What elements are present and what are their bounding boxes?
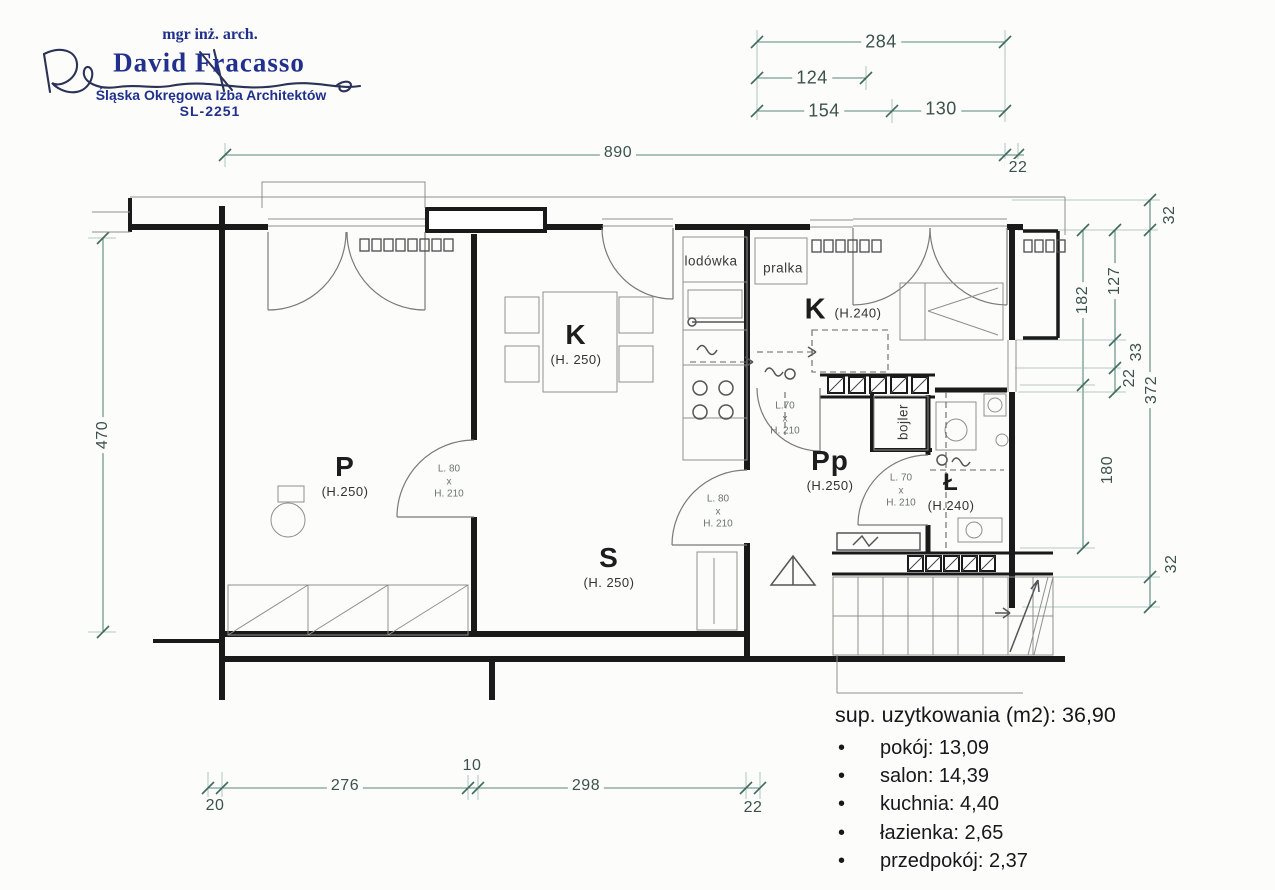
dashed-lines xyxy=(690,330,1004,550)
dim-22-mid: 22 xyxy=(1121,365,1139,392)
sink xyxy=(688,290,742,318)
dim-298: 298 xyxy=(568,777,604,795)
room-label-salon: S (H. 250) xyxy=(584,544,635,590)
summary-item-lazienka: • łazienka: 2,65 xyxy=(838,821,1003,845)
wardrobe xyxy=(228,585,468,635)
label-washer: pralka xyxy=(763,261,803,276)
dim-124: 124 xyxy=(792,68,832,89)
floorplan-scan-page: mgr inż. arch. David Fracasso Śląska Okr… xyxy=(0,0,1275,890)
dim-182: 182 xyxy=(1074,282,1092,318)
radiator-row-1 xyxy=(360,239,453,251)
bullet-icon: • xyxy=(838,793,854,816)
label-fridge: lodówka xyxy=(684,254,737,269)
radiator-row-2 xyxy=(812,240,881,252)
summary-item-salon: • salon: 14,39 xyxy=(838,764,989,788)
floorplan-drawing xyxy=(0,0,1275,890)
door-label-bath: L. 70 x H. 210 xyxy=(886,472,915,510)
room-label-kuchnia: K (H.240) xyxy=(805,296,882,325)
staircase xyxy=(833,577,1053,693)
radiator-symbols xyxy=(360,239,1065,252)
entrance-marker xyxy=(771,556,815,585)
door-label-p: L. 80 x H. 210 xyxy=(434,463,463,501)
dim-180: 180 xyxy=(1099,452,1117,488)
label-boiler: bojler xyxy=(896,404,911,440)
dim-33: 33 xyxy=(1128,339,1146,366)
hatch-row-lower xyxy=(908,556,995,571)
bathroom-fixtures xyxy=(936,394,1008,542)
hatch-row-upper xyxy=(828,377,928,393)
window-symbol xyxy=(427,209,545,231)
summary-item-przedpokoj: • przedpokój: 2,37 xyxy=(838,849,1028,873)
dim-276: 276 xyxy=(327,777,363,795)
bullet-icon: • xyxy=(838,737,854,760)
stamp-title: mgr inż. arch. xyxy=(162,26,257,44)
summary-item-kuchnia: • kuchnia: 4,40 xyxy=(838,792,999,816)
stool xyxy=(271,503,305,537)
room-label-pokoj: P (H.250) xyxy=(322,453,369,499)
summary-title: sup. uzytkowania (m2): 36,90 xyxy=(835,703,1116,728)
dim-154: 154 xyxy=(804,101,844,122)
dim-22-top: 22 xyxy=(1005,159,1032,177)
door-label-s: L. 80 x H. 210 xyxy=(703,493,732,531)
stamp-license: SL-2251 xyxy=(180,103,241,119)
bullet-icon: • xyxy=(838,850,854,873)
bullet-icon: • xyxy=(838,822,854,845)
stamp-name: David Fracasso xyxy=(113,48,305,79)
walls xyxy=(130,198,1065,700)
stamp-chamber: Śląska Okręgowa Izba Architektów xyxy=(96,87,327,103)
room-label-przedpokoj: Pp (H.250) xyxy=(807,447,854,493)
dim-130: 130 xyxy=(921,99,961,120)
dim-22-bottom: 22 xyxy=(740,799,767,817)
entry-cabinet xyxy=(837,533,920,550)
dim-127: 127 xyxy=(1106,263,1124,299)
dim-20: 20 xyxy=(202,797,229,815)
kitchen-counter xyxy=(900,283,1003,340)
dim-470: 470 xyxy=(94,417,112,453)
bullet-icon: • xyxy=(838,765,854,788)
dim-372: 372 xyxy=(1143,372,1161,408)
dim-10: 10 xyxy=(459,757,486,775)
radiator-vertical xyxy=(697,552,737,630)
dim-284: 284 xyxy=(861,32,901,53)
dim-890: 890 xyxy=(600,144,636,162)
dim-32-bottom: 32 xyxy=(1163,551,1181,578)
room-label-lazienka: Ł (H.240) xyxy=(928,471,975,513)
room-label-kuchnia-aneks: K (H. 250) xyxy=(551,321,602,367)
kitchenette xyxy=(683,237,747,460)
summary-item-pokoj: • pokój: 13,09 xyxy=(838,736,989,760)
dim-32-top: 32 xyxy=(1161,202,1179,229)
door-label-pp: L.70 x H. 210 xyxy=(770,400,799,438)
